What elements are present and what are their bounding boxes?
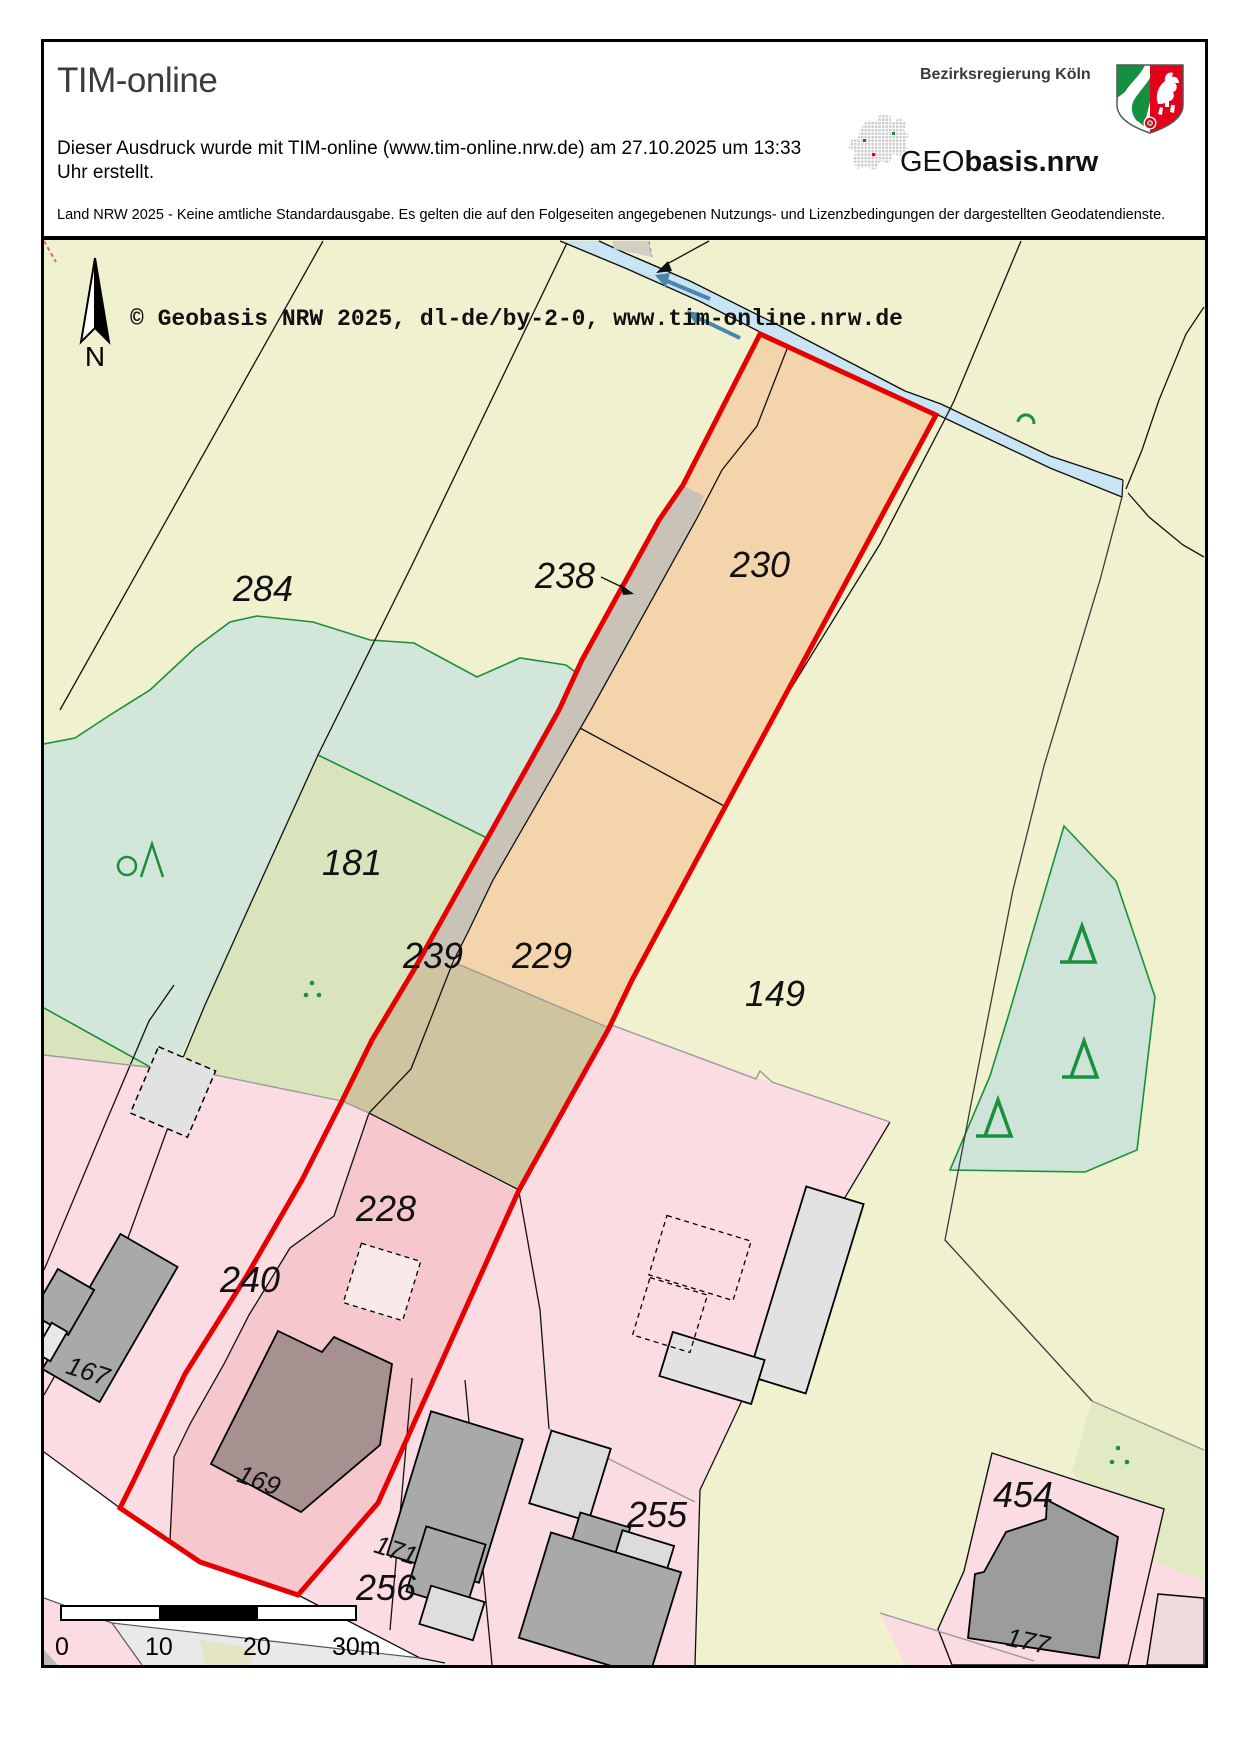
svg-text:0: 0 [55, 1633, 69, 1661]
svg-text:181: 181 [322, 842, 382, 883]
svg-text:256: 256 [355, 1567, 417, 1608]
svg-text:© Geobasis NRW 2025, dl-de/by-: © Geobasis NRW 2025, dl-de/by-2-0, www.t… [130, 306, 903, 332]
svg-text:239: 239 [402, 935, 463, 976]
svg-text:30m: 30m [332, 1633, 381, 1661]
svg-text:230: 230 [729, 544, 790, 585]
svg-text:20: 20 [243, 1633, 271, 1661]
svg-text:N: N [85, 341, 105, 372]
svg-text:238: 238 [534, 555, 595, 596]
svg-text:255: 255 [626, 1494, 688, 1535]
svg-text:454: 454 [993, 1474, 1053, 1515]
svg-text:149: 149 [745, 973, 805, 1014]
svg-text:284: 284 [232, 568, 293, 609]
svg-text:240: 240 [219, 1259, 280, 1300]
svg-text:229: 229 [511, 935, 572, 976]
svg-text:10: 10 [145, 1633, 173, 1661]
svg-text:GEObasis.nrw: GEObasis.nrw [900, 146, 1099, 178]
svg-text:228: 228 [355, 1188, 416, 1229]
